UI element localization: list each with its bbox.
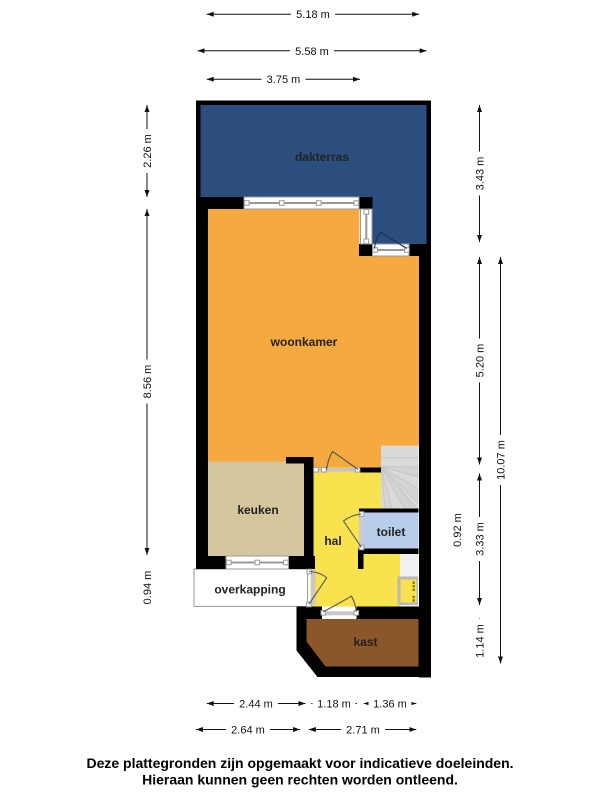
svg-text:1.18 m: 1.18 m — [317, 699, 351, 711]
svg-text:3.33 m: 3.33 m — [475, 522, 487, 556]
svg-text:5.20 m: 5.20 m — [475, 344, 487, 378]
svg-text:2.71 m: 2.71 m — [346, 725, 380, 737]
svg-text:dakterras: dakterras — [295, 150, 349, 164]
svg-text:2.44 m: 2.44 m — [239, 699, 273, 711]
svg-text:3.75 m: 3.75 m — [267, 74, 301, 86]
svg-text:kast: kast — [353, 635, 377, 649]
svg-text:1.14 m: 1.14 m — [475, 624, 487, 658]
svg-text:2.26 m: 2.26 m — [142, 134, 154, 168]
svg-text:1.36 m: 1.36 m — [373, 699, 407, 711]
svg-text:0.92 m: 0.92 m — [452, 513, 464, 547]
svg-text:10.07 m: 10.07 m — [496, 440, 508, 480]
svg-text:0.94 m: 0.94 m — [142, 571, 154, 605]
svg-text:toilet: toilet — [377, 525, 406, 539]
svg-text:woonkamer: woonkamer — [270, 335, 338, 349]
svg-text:8.56 m: 8.56 m — [142, 365, 154, 399]
svg-text:keuken: keuken — [237, 503, 278, 517]
svg-text:5.58 m: 5.58 m — [295, 46, 329, 58]
svg-text:Deze plattegronden zijn opgema: Deze plattegronden zijn opgemaakt voor i… — [86, 755, 513, 771]
svg-text:3.43 m: 3.43 m — [475, 157, 487, 191]
svg-text:2.64 m: 2.64 m — [231, 725, 265, 737]
svg-text:overkapping: overkapping — [214, 583, 285, 597]
svg-text:Hieraan kunnen geen rechten wo: Hieraan kunnen geen rechten worden ontle… — [142, 772, 458, 788]
svg-text:hal: hal — [324, 534, 341, 548]
svg-text:5.18 m: 5.18 m — [296, 9, 330, 21]
